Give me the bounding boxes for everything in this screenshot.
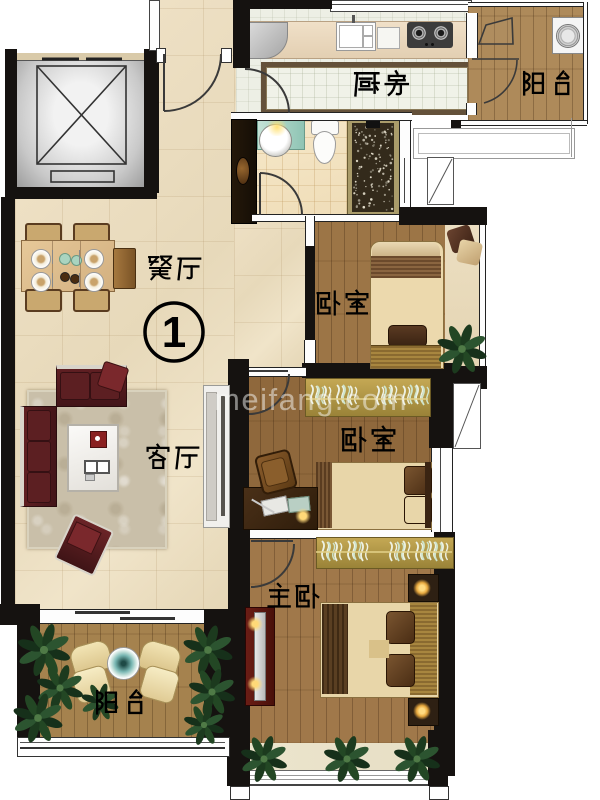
svg-text:1: 1 — [162, 308, 186, 357]
